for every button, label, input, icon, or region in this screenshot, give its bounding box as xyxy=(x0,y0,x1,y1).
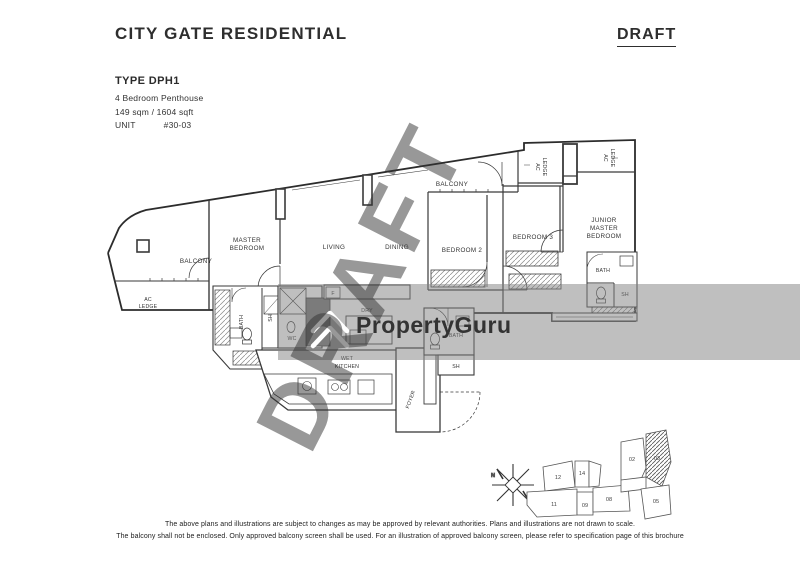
key-plan: N 12 14 11 09 08 02 03 05 xyxy=(491,430,671,519)
label-bedroom3: BEDROOM 3 xyxy=(513,234,554,241)
keyplan-label-02: 02 xyxy=(629,457,635,463)
disclaimer-line-2: The balcony shall not be enclosed. Only … xyxy=(0,533,800,540)
brochure-page: CITY GATE RESIDENTIAL DRAFT TYPE DPH1 4 … xyxy=(0,0,800,565)
label-balcony-left: BALCONY xyxy=(180,258,213,265)
keyplan-label-03: 03 xyxy=(654,456,660,462)
floor-plan-canvas: BALCONY AC LEDGE MASTER BEDROOM LIVING D… xyxy=(0,0,800,565)
label-master-2: BEDROOM xyxy=(230,245,265,252)
label-master-1: MASTER xyxy=(233,237,261,244)
north-label: N xyxy=(491,473,495,479)
label-ac-top1-2: LEDGE xyxy=(541,158,547,177)
balcony-door-arc xyxy=(478,162,502,186)
label-ac-top1-1: AC xyxy=(534,163,540,171)
label-sh-common: SH xyxy=(452,364,460,370)
left-balcony xyxy=(114,200,209,310)
keyplan-unit-ext xyxy=(589,461,601,487)
keyplan-label-12: 12 xyxy=(555,475,561,481)
keyplan-label-14: 14 xyxy=(579,471,585,477)
column xyxy=(137,240,149,252)
label-bath-master: BATH xyxy=(239,315,245,329)
wardrobe xyxy=(506,251,558,266)
wardrobe xyxy=(215,290,230,345)
label-sh-master: SH xyxy=(268,314,274,322)
label-junior-1: JUNIOR xyxy=(591,217,616,224)
label-ac-ledge-left-1: AC xyxy=(144,297,152,303)
disclaimer-line-1: The above plans and illustrations are su… xyxy=(0,521,800,528)
label-junior-3: BEDROOM xyxy=(587,233,622,240)
label-bath-junior: BATH xyxy=(596,268,610,274)
keyplan-label-08: 08 xyxy=(606,497,612,503)
keyplan-label-09: 09 xyxy=(582,503,588,509)
keyplan-label-05: 05 xyxy=(653,499,659,505)
label-junior-2: MASTER xyxy=(590,225,618,232)
label-ac-ledge-left-2: LEDGE xyxy=(139,304,158,310)
keyplan-label-11: 11 xyxy=(551,502,557,508)
master-door-arc xyxy=(258,266,280,288)
label-bedroom2: BEDROOM 2 xyxy=(442,247,483,254)
pillar xyxy=(276,189,285,219)
label-ac-top2-1: AC xyxy=(602,154,608,162)
pillar xyxy=(563,144,577,184)
label-ac-top2-2: LEDGE xyxy=(609,149,615,168)
entrance-door-arc xyxy=(440,392,480,432)
